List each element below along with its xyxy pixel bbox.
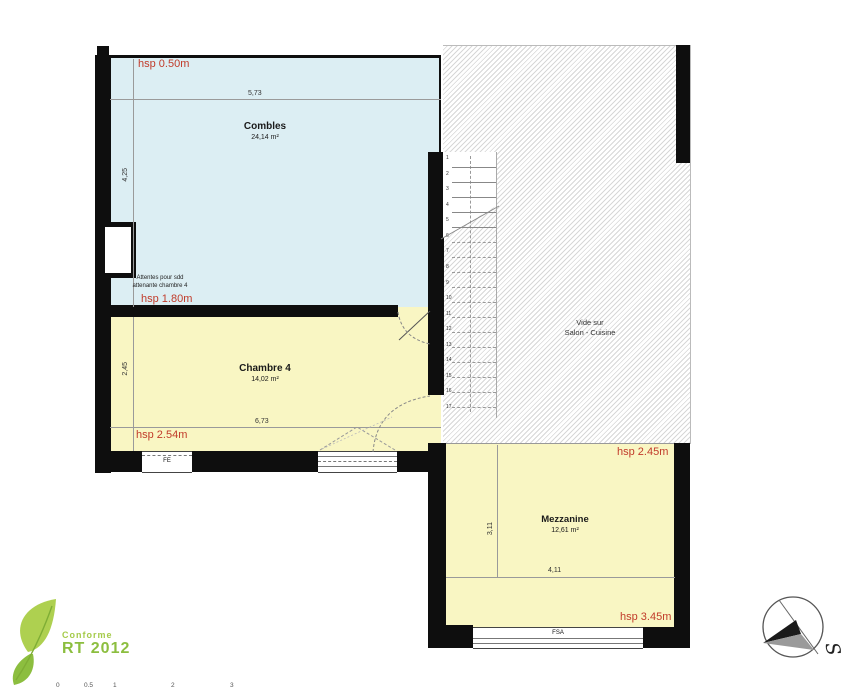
window-fsa-line xyxy=(473,638,643,639)
floor-plan: FE FSA 1234567891011121314151617 5,73 4,… xyxy=(0,0,860,691)
room-combles xyxy=(110,58,441,307)
stair-step-number: 17 xyxy=(446,405,454,410)
wall-chambre4-bottom-a xyxy=(95,451,142,472)
badge-line1: Conforme xyxy=(62,630,130,640)
window-line xyxy=(318,461,397,462)
stair-step xyxy=(452,212,496,213)
stair-step xyxy=(452,227,496,228)
window-fsa: FSA xyxy=(473,627,643,649)
window-fsa-label: FSA xyxy=(473,630,643,636)
combles-name: Combles xyxy=(160,121,370,133)
hsp-mezzanine-top: hsp 2.45m xyxy=(617,446,668,458)
dimline-chambre4-depth xyxy=(133,317,134,451)
dim-chambre4-width: 6,73 xyxy=(255,418,269,425)
stair-step-number: 10 xyxy=(446,296,454,301)
stair-step xyxy=(452,347,496,348)
mezzanine-label: Mezzanine 12,61 m² xyxy=(500,514,630,535)
scale-bar: 0 0.5 1 2 3 xyxy=(0,682,300,691)
window-fe: FE xyxy=(142,451,192,473)
note-line1: Attentes pour sdd xyxy=(104,274,216,282)
stair-step-number: 9 xyxy=(446,281,454,286)
note-line2: attenante chambre 4 xyxy=(104,282,216,290)
compass-icon xyxy=(763,597,823,657)
wall-stair-left xyxy=(428,152,444,395)
wall-top-right xyxy=(676,45,690,163)
stair-step xyxy=(452,362,496,363)
stair-step-number: 16 xyxy=(446,389,454,394)
hsp-combles-top: hsp 0.50m xyxy=(138,58,189,70)
stair-step xyxy=(452,377,496,378)
rt2012-badge: Conforme RT 2012 xyxy=(62,630,130,658)
scale-tick: 2 xyxy=(171,682,175,689)
vide-line1: Vide sur xyxy=(528,318,652,328)
stair-step-number: 2 xyxy=(446,172,454,177)
stair-step-number: 11 xyxy=(446,312,454,317)
hsp-mezzanine-bottom: hsp 3.45m xyxy=(620,611,671,623)
scale-tick: 1 xyxy=(113,682,117,689)
stair-step xyxy=(452,272,496,273)
stair-step-number: 1 xyxy=(446,156,454,161)
chambre4-label: Chambre 4 14,02 m² xyxy=(160,363,370,384)
stair-step xyxy=(452,332,496,333)
dimline-mezzanine-depth xyxy=(497,445,498,577)
stair-step-number: 14 xyxy=(446,358,454,363)
stair-step xyxy=(452,392,496,393)
wall-mezzanine-right xyxy=(674,443,690,633)
wall-divider-combles-chambre4 xyxy=(107,305,398,317)
window-fsa-line xyxy=(473,643,643,644)
combles-area: 24,14 m² xyxy=(160,133,370,142)
dim-combles-width: 5,73 xyxy=(248,90,262,97)
dimline-combles-depth xyxy=(133,59,134,307)
stair-step-number: 12 xyxy=(446,327,454,332)
stair-step xyxy=(452,287,496,288)
window-fe-label: FE xyxy=(142,458,192,464)
dimline-combles-width xyxy=(110,99,441,100)
stair-step-number: 15 xyxy=(446,374,454,379)
badge-line2: RT 2012 xyxy=(62,640,130,658)
stair-step xyxy=(452,257,496,258)
wall-mezzanine-bottom-left xyxy=(428,625,473,648)
scale-tick: 0 xyxy=(56,682,60,689)
stair-step-number: 7 xyxy=(446,249,454,254)
dimline-mezzanine-width xyxy=(446,577,675,578)
wall-notch xyxy=(100,222,136,278)
window-line xyxy=(318,456,397,457)
vide-line2: Salon - Cuisine xyxy=(528,328,652,338)
wall-combles-right-thin xyxy=(439,58,441,154)
wall-chambre4-bottom-b xyxy=(192,451,318,472)
dimline-chambre4-width xyxy=(110,427,441,428)
wall-mezzanine-left xyxy=(428,443,446,648)
window-line xyxy=(318,466,397,467)
dim-combles-depth: 4,25 xyxy=(122,168,129,182)
stair-step-number: 13 xyxy=(446,343,454,348)
mezzanine-area: 12,61 m² xyxy=(500,526,630,535)
stair-step xyxy=(452,317,496,318)
stair-step-number: 3 xyxy=(446,187,454,192)
chambre4-name: Chambre 4 xyxy=(160,363,370,375)
stair-step-numbers: 1234567891011121314151617 xyxy=(446,156,454,410)
wall-mezzanine-bottom-right xyxy=(643,627,690,648)
combles-label: Combles 24,14 m² xyxy=(160,121,370,142)
window-chambre4-center xyxy=(318,451,397,473)
stair-step xyxy=(452,167,496,168)
stair-step-number: 8 xyxy=(446,265,454,270)
scale-tick: 0.5 xyxy=(84,682,93,689)
mezzanine-name: Mezzanine xyxy=(500,514,630,526)
stair-step xyxy=(452,242,496,243)
stair-step-number: 6 xyxy=(446,234,454,239)
vide-label: Vide sur Salon - Cuisine xyxy=(528,318,652,338)
window-fe-line xyxy=(142,455,192,456)
stair-step-number: 4 xyxy=(446,203,454,208)
chambre4-area: 14,02 m² xyxy=(160,375,370,384)
hsp-chambre4: hsp 2.54m xyxy=(136,429,187,441)
note-attentes: Attentes pour sdd attenante chambre 4 xyxy=(104,274,216,290)
scale-tick: 3 xyxy=(230,682,234,689)
dim-mezzanine-depth: 3,11 xyxy=(487,522,494,535)
stair-step xyxy=(452,182,496,183)
leaf-icon xyxy=(13,599,56,685)
dim-chambre4-depth: 2,45 xyxy=(122,362,129,376)
stair-step-number: 5 xyxy=(446,218,454,223)
stair-step xyxy=(452,407,496,408)
hsp-combles-bottom: hsp 1.80m xyxy=(141,293,192,305)
dim-mezzanine-width: 4,11 xyxy=(548,567,561,574)
stair-step xyxy=(452,197,496,198)
room-mezzanine xyxy=(446,443,675,628)
compass-south-letter: S xyxy=(820,640,844,657)
stair-step xyxy=(452,302,496,303)
